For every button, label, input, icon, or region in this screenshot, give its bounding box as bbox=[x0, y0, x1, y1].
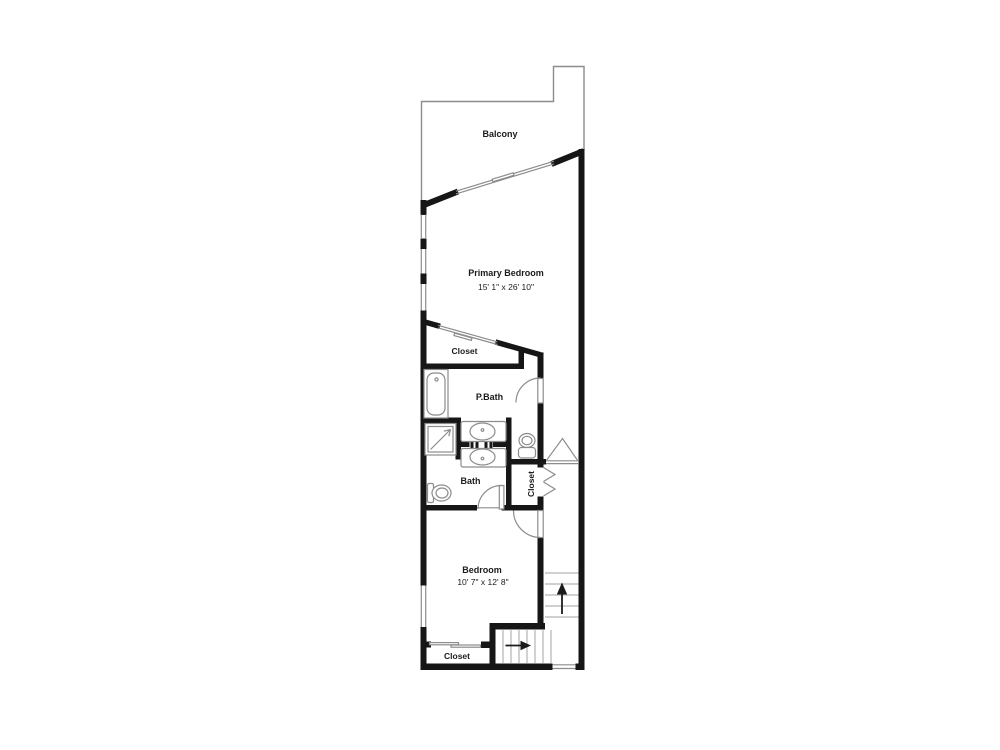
primary-bath-door bbox=[516, 378, 543, 403]
hall-closet-label: Closet bbox=[526, 471, 536, 497]
bedroom-dimensions: 10' 7" x 12' 8" bbox=[457, 577, 508, 587]
shower-icon bbox=[425, 424, 456, 456]
bath-door bbox=[477, 485, 504, 509]
hall-closet-bifold-door bbox=[544, 468, 556, 497]
primary-bath-label: P.Bath bbox=[476, 392, 503, 402]
bedroom-closet-label: Closet bbox=[444, 651, 470, 661]
primary-closet-sliding-door bbox=[438, 325, 498, 344]
primary-bedroom-label: Primary Bedroom bbox=[468, 268, 544, 278]
primary-bath-sink-icon bbox=[461, 422, 506, 442]
bathtub-icon bbox=[424, 370, 448, 419]
stairs-up-arrow-icon bbox=[557, 583, 567, 615]
bedroom-label: Bedroom bbox=[462, 565, 502, 575]
balcony-label: Balcony bbox=[482, 129, 517, 139]
primary-bedroom-entry-door bbox=[546, 439, 578, 465]
bedroom-closet-sliding-door bbox=[430, 643, 481, 648]
balcony-sliding-door bbox=[456, 161, 554, 194]
primary-closet-label: Closet bbox=[452, 346, 478, 356]
primary-bedroom-dimensions: 15' 1" x 26' 10" bbox=[478, 282, 534, 292]
bottom-wall-window bbox=[553, 665, 576, 669]
floor-plan-drawing bbox=[0, 0, 1000, 750]
bath-sink-icon bbox=[461, 449, 506, 468]
bath-toilet-icon bbox=[428, 484, 452, 503]
primary-bath-toilet-icon bbox=[519, 434, 536, 459]
bath-label: Bath bbox=[461, 476, 481, 486]
floor-plan-canvas: Balcony Primary Bedroom 15' 1" x 26' 10"… bbox=[0, 0, 1000, 750]
bedroom-entry-door bbox=[514, 511, 544, 538]
